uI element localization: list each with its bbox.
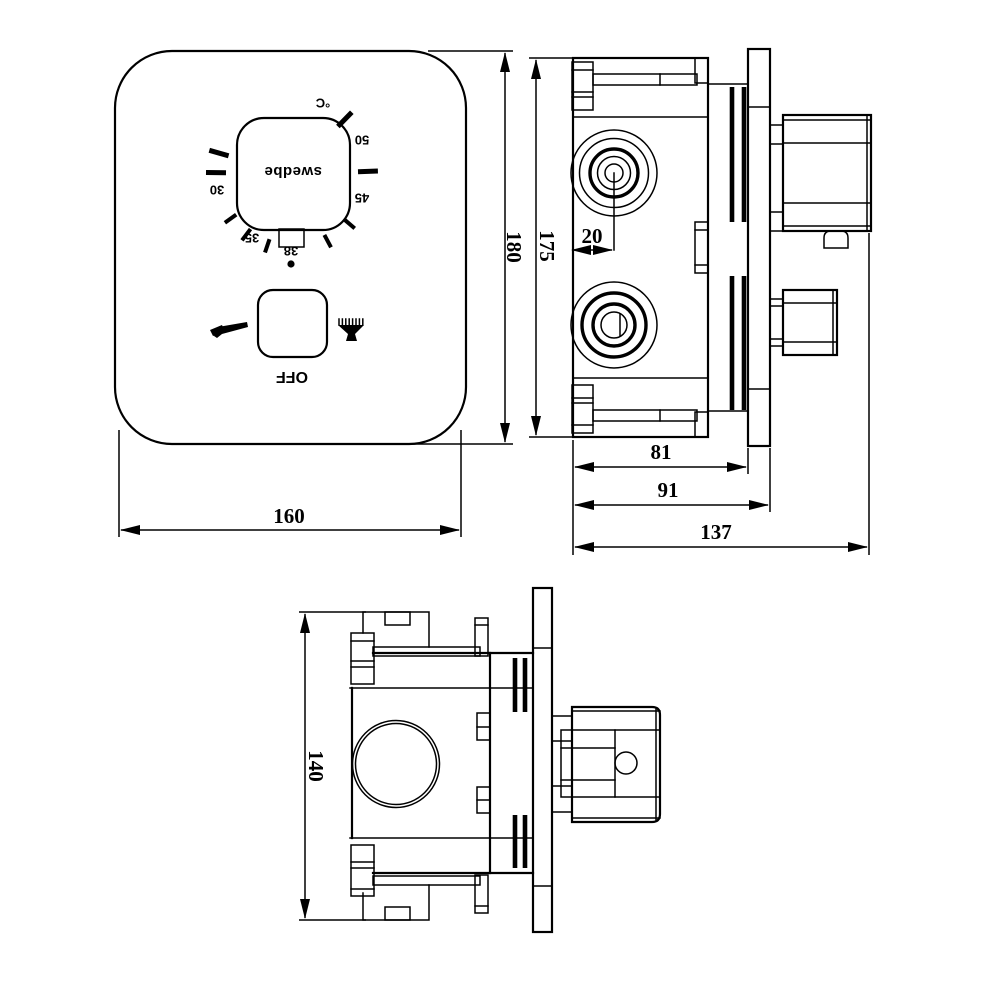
drawing-page: swedbe °C 50 45 38 35 30 OFF (0, 0, 1000, 1000)
dial-label-45: 45 (355, 191, 369, 206)
dial-unit-label: °C (315, 96, 330, 111)
dim-81-text: 81 (651, 440, 672, 464)
dial-label-35: 35 (245, 231, 259, 246)
dim-180-text: 180 (502, 231, 526, 263)
dial-label-38: 38 (284, 244, 298, 259)
dim-20-text: 20 (582, 224, 603, 248)
dim-91-text: 91 (658, 478, 679, 502)
dial-tick (358, 171, 378, 172)
technical-drawing: swedbe °C 50 45 38 35 30 OFF (0, 0, 1000, 1000)
dial-label-50: 50 (355, 133, 369, 148)
dim-137-text: 137 (700, 520, 732, 544)
paper-background (0, 0, 1000, 1000)
dial-38-safety-dot (287, 260, 294, 267)
dim-140-text: 140 (304, 750, 328, 782)
dim-175-text: 175 (535, 230, 559, 262)
dial-label-30: 30 (210, 183, 224, 198)
off-label: OFF (276, 368, 308, 385)
brand-label: swedbe (264, 163, 322, 180)
dim-160-text: 160 (273, 504, 305, 528)
